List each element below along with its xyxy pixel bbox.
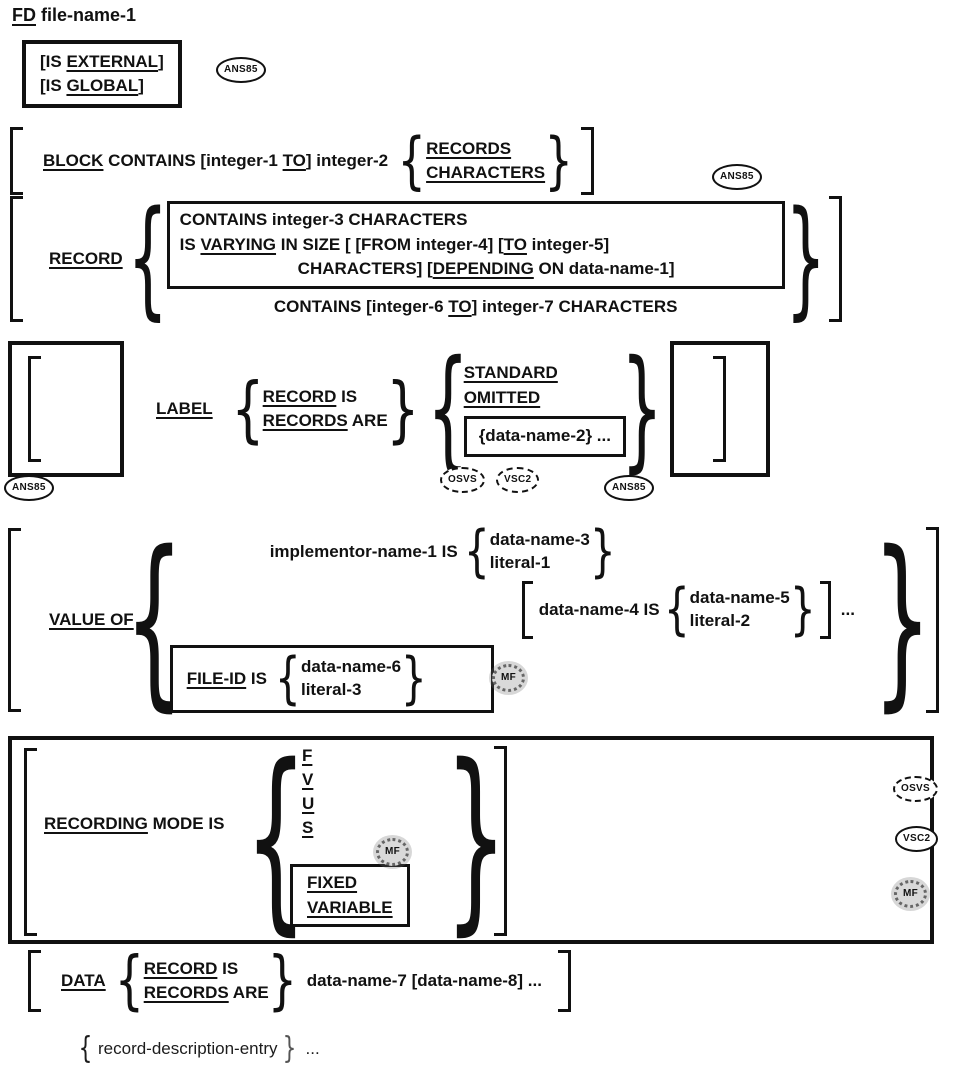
is-external-line: [IS EXTERNAL] xyxy=(40,50,164,74)
implementor-name-text: implementor-name-1 IS xyxy=(270,542,458,562)
to-keyword: TO xyxy=(448,297,471,316)
right-brace: } xyxy=(390,378,416,440)
left-brace: { xyxy=(277,654,299,704)
osvs-bubble: OSVS xyxy=(440,467,485,493)
block-contains-text: BLOCK CONTAINS [integer-1 TO] integer-2 xyxy=(43,151,388,171)
left-brace: { xyxy=(235,378,261,440)
ans85-bubble: ANS85 xyxy=(712,164,762,190)
record-contains-6-7-line: CONTAINS [integer-6 TO] integer-7 CHARAC… xyxy=(167,297,785,317)
boxed-right-bracket xyxy=(670,341,770,477)
right-brace: } xyxy=(284,1034,296,1064)
is-external-open: [IS xyxy=(40,52,66,71)
file-id-row: FILE-ID IS { data-name-6 literal-3 } xyxy=(170,645,886,713)
data-name-7-8-text: data-name-7 [data-name-8] ... xyxy=(307,971,542,991)
fd-keyword: FD xyxy=(12,5,36,26)
record-description-line: { record-description-entry } ... xyxy=(80,1032,320,1066)
label-clause: LABEL { RECORD IS RECORDS ARE } { STANDA… xyxy=(8,342,770,476)
data-records-clause: DATA { RECORD IS RECORDS ARE } data-name… xyxy=(28,950,571,1012)
data-name-6-option: data-name-6 xyxy=(301,656,401,679)
recording-mode-text: RECORDING MODE IS xyxy=(44,814,224,834)
right-bracket xyxy=(713,356,726,462)
literal-1-option: literal-1 xyxy=(490,552,590,575)
block-tail-text: ] integer-2 xyxy=(306,151,388,170)
data-name-5-option: data-name-5 xyxy=(690,587,790,610)
left-bracket xyxy=(28,950,41,1012)
record-varying-line: IS VARYING IN SIZE [ [FROM integer-4] [T… xyxy=(180,233,772,258)
right-brace: } xyxy=(271,953,295,1009)
s-option: S xyxy=(302,818,314,838)
u-option: U xyxy=(302,794,314,814)
left-bracket xyxy=(28,356,41,462)
block-contains-clause: BLOCK CONTAINS [integer-1 TO] integer-2 … xyxy=(10,126,594,196)
mf-bubble: MF xyxy=(492,664,525,692)
right-bracket xyxy=(820,581,831,639)
external-global-section: [IS EXTERNAL] [IS GLOBAL] xyxy=(22,40,182,108)
record-clause: RECORD { CONTAINS integer-3 CHARACTERS I… xyxy=(10,196,842,322)
block-keyword: BLOCK xyxy=(43,151,103,170)
cobol-fd-syntax-page: FD file-name-1 [IS EXTERNAL] [IS GLOBAL]… xyxy=(0,0,957,1074)
left-brace: { xyxy=(133,198,163,320)
right-bracket xyxy=(829,196,842,322)
record-is-are-options: RECORD IS RECORDS ARE xyxy=(263,385,388,433)
external-global-box: [IS EXTERNAL] [IS GLOBAL] xyxy=(22,40,182,108)
literal-3-option: literal-3 xyxy=(301,679,401,702)
left-brace: { xyxy=(466,527,488,577)
right-brace: } xyxy=(792,585,814,635)
record-keyword: RECORD xyxy=(263,387,337,406)
is-global-open: [IS xyxy=(40,76,66,95)
characters-option: CHARACTERS xyxy=(426,161,545,185)
is-global-line: [IS GLOBAL] xyxy=(40,74,164,98)
label-keyword: LABEL xyxy=(156,399,213,419)
right-bracket xyxy=(494,746,507,936)
is-global-close: ] xyxy=(138,76,144,95)
ans85-bubble: ANS85 xyxy=(4,475,54,501)
ans85-bubble: ANS85 xyxy=(604,475,654,501)
data-keyword: DATA xyxy=(61,971,106,991)
external-keyword: EXTERNAL xyxy=(66,52,158,71)
record-description-entry-text: record-description-entry xyxy=(98,1039,278,1059)
record-depending-line: CHARACTERS] [DEPENDING ON data-name-1] xyxy=(180,257,772,282)
v-option: V xyxy=(302,770,314,790)
is-external-close: ] xyxy=(158,52,164,71)
right-brace: } xyxy=(791,198,821,320)
records-keyword: RECORDS xyxy=(144,983,229,1002)
right-brace: } xyxy=(460,742,492,934)
left-brace: { xyxy=(666,585,688,635)
vsc2-bubble: VSC2 xyxy=(496,467,539,493)
left-brace: { xyxy=(434,346,462,472)
depending-keyword: DEPENDING xyxy=(433,259,534,278)
right-bracket xyxy=(581,127,594,195)
standard-option: STANDARD xyxy=(464,361,626,386)
variable-option: VARIABLE xyxy=(307,896,393,921)
data-name-2-box: {data-name-2} ... xyxy=(464,416,626,457)
records-option: RECORDS xyxy=(426,137,545,161)
left-brace: { xyxy=(400,133,424,189)
left-brace: { xyxy=(138,530,170,710)
records-characters-options: RECORDS CHARACTERS xyxy=(426,137,545,185)
fixed-option: FIXED xyxy=(307,871,393,896)
literal-2-option: literal-2 xyxy=(690,610,790,633)
file-id-box: FILE-ID IS { data-name-6 literal-3 } xyxy=(170,645,494,713)
boxed-left-bracket xyxy=(8,341,124,477)
repeat-ellipsis: ... xyxy=(841,600,855,620)
ans85-bubble: ANS85 xyxy=(216,57,266,83)
omitted-option: OMITTED xyxy=(464,386,626,411)
data-name-4-text: data-name-4 IS xyxy=(539,600,660,620)
global-keyword: GLOBAL xyxy=(66,76,138,95)
value-of-clause: VALUE OF { implementor-name-1 IS { data-… xyxy=(8,528,939,712)
left-bracket xyxy=(10,196,23,322)
osvs-bubble: OSVS xyxy=(893,776,938,802)
left-bracket xyxy=(522,581,533,639)
fd-operand: file-name-1 xyxy=(41,5,136,26)
right-brace: } xyxy=(403,654,425,704)
record-is-are-options: RECORD IS RECORDS ARE xyxy=(144,957,269,1005)
right-brace: } xyxy=(628,346,656,472)
left-brace: { xyxy=(260,742,292,934)
right-brace: } xyxy=(886,530,918,710)
fd-header-line: FD file-name-1 xyxy=(12,5,136,26)
vsc2-bubble: VSC2 xyxy=(895,826,938,852)
mf-bubble: MF xyxy=(894,880,927,908)
implementor-name-row: implementor-name-1 IS { data-name-3 lite… xyxy=(270,527,886,577)
block-mid-text: CONTAINS [integer-1 xyxy=(103,151,282,170)
fvus-options: F V U S xyxy=(302,746,314,838)
to-keyword: TO xyxy=(283,151,306,170)
to-keyword: TO xyxy=(504,235,527,254)
right-brace: } xyxy=(547,133,571,189)
recording-keyword: RECORDING xyxy=(44,814,148,833)
data-name-3-option: data-name-3 xyxy=(490,529,590,552)
left-brace: { xyxy=(118,953,142,1009)
records-keyword: RECORDS xyxy=(263,411,348,430)
record-varying-box: CONTAINS integer-3 CHARACTERS IS VARYING… xyxy=(167,201,785,289)
repeat-ellipsis: ... xyxy=(306,1039,320,1059)
recording-mode-box: RECORDING MODE IS { F V U S FIXED VARIAB… xyxy=(8,736,934,944)
value-of-keyword: VALUE OF xyxy=(49,610,134,630)
mf-bubble: MF xyxy=(376,838,409,866)
record-contains-3-line: CONTAINS integer-3 CHARACTERS xyxy=(180,208,772,233)
left-bracket xyxy=(8,528,21,712)
left-brace: { xyxy=(80,1034,92,1064)
right-brace: } xyxy=(592,527,614,577)
file-id-keyword: FILE-ID xyxy=(187,669,247,688)
data-name-2-option: {data-name-2} ... xyxy=(479,426,611,445)
f-option: F xyxy=(302,746,314,766)
left-bracket xyxy=(24,748,37,936)
varying-keyword: VARYING xyxy=(200,235,276,254)
record-keyword: RECORD xyxy=(144,959,218,978)
left-bracket xyxy=(10,127,23,195)
fixed-variable-box: FIXED VARIABLE xyxy=(290,864,410,927)
right-bracket xyxy=(558,950,571,1012)
record-keyword: RECORD xyxy=(49,249,123,269)
data-name-4-row: data-name-4 IS { data-name-5 literal-2 }… xyxy=(522,581,886,639)
